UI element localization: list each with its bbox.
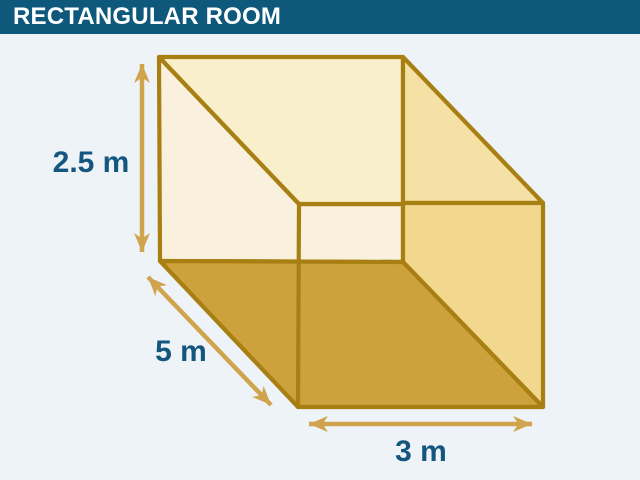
depth-dimension-label: 5 m: [155, 335, 207, 368]
room-diagram: 2.5 m 5 m 3 m: [0, 0, 640, 480]
room-faces: [159, 57, 543, 407]
ceiling-right-face: [403, 57, 543, 203]
front-left-vertical-edge: [298, 204, 299, 407]
header-bar: RECTANGULAR ROOM: [0, 0, 640, 34]
height-dimension-label: 2.5 m: [53, 146, 130, 179]
page: 2.5 m 5 m 3 m RECTANGULAR ROOM: [0, 0, 640, 480]
page-title: RECTANGULAR ROOM: [0, 0, 281, 34]
width-dimension-label: 3 m: [395, 435, 447, 468]
